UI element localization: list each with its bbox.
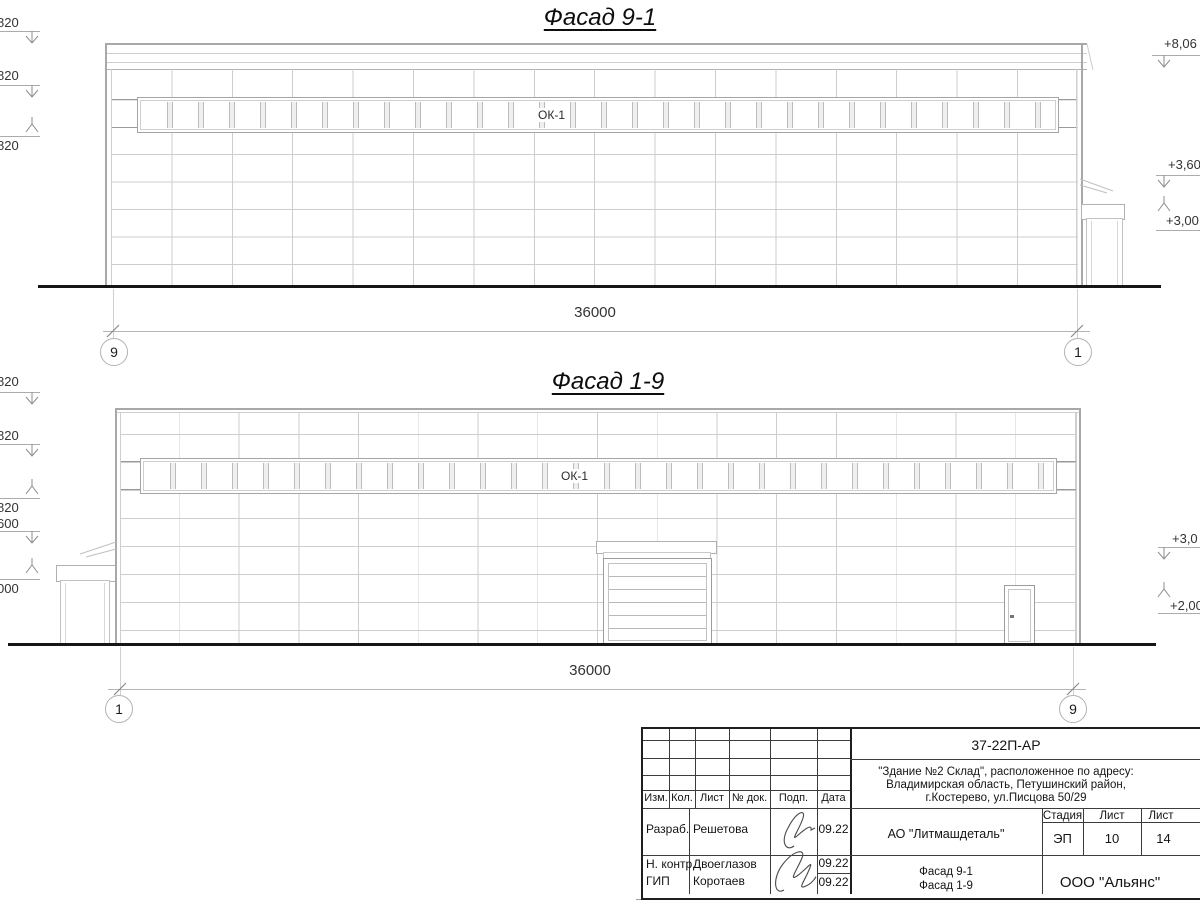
elevation-arrow-down-icon bbox=[26, 444, 38, 456]
porch-inner-lines bbox=[1091, 221, 1118, 287]
canopy-slope-line bbox=[80, 542, 116, 557]
dimension-text: 36000 bbox=[490, 662, 690, 679]
wall-edge-left-inner bbox=[111, 69, 112, 286]
tb-project-line: г.Костерево, ул.Писцова 50/29 bbox=[850, 792, 1162, 805]
dimension-line bbox=[108, 689, 1086, 690]
tb-date: 09.22 bbox=[817, 823, 850, 837]
tb-line bbox=[643, 808, 1200, 809]
wall-edge-left-inner bbox=[120, 412, 121, 644]
window-band-label: ОК-1 bbox=[533, 108, 570, 122]
tb-stage-value: ЭП bbox=[1042, 832, 1083, 847]
door-handle bbox=[1010, 615, 1014, 618]
fascia-line bbox=[105, 43, 1087, 45]
tb-sheets-label: Лист bbox=[1143, 810, 1179, 823]
tb-stage-label: Стадия bbox=[1042, 810, 1083, 823]
tb-line bbox=[643, 790, 850, 791]
tb-name: Решетова bbox=[693, 823, 748, 837]
elevation-label: 600 bbox=[0, 516, 19, 531]
window-band-label: ОК-1 bbox=[556, 469, 593, 483]
elevation-leader bbox=[1158, 613, 1200, 614]
tb-role: ГИП bbox=[646, 875, 670, 889]
title-block: Изм. Кол. Лист № док. Подп. Дата Разраб.… bbox=[641, 727, 1200, 900]
ground-line bbox=[38, 285, 1161, 288]
tb-col-header: Кол. bbox=[669, 792, 695, 805]
elevation-label: 000 bbox=[0, 581, 19, 596]
tb-col-header: Изм. bbox=[643, 792, 669, 805]
elevation-label: +3,00 bbox=[1166, 213, 1199, 228]
band-level-line bbox=[120, 489, 140, 490]
tb-col-header: Лист bbox=[695, 792, 729, 805]
extension-line bbox=[1073, 647, 1074, 695]
elevation-leader bbox=[0, 31, 40, 32]
tb-doc-number: 37-22П-АР bbox=[850, 737, 1162, 753]
tb-sheet-title-line: Фасад 1-9 bbox=[850, 880, 1042, 893]
tb-line bbox=[770, 729, 771, 894]
tb-name: Двоеглазов bbox=[693, 858, 757, 872]
band-level-line bbox=[112, 99, 137, 100]
tb-project-line: Владимирская область, Петушинский район, bbox=[850, 779, 1162, 792]
elevation-label: +3,60 bbox=[1168, 157, 1200, 172]
window-mullions bbox=[145, 463, 1052, 489]
elevation-label: 820 bbox=[0, 68, 19, 83]
ribbon-window-band: ОК-1 bbox=[137, 97, 1059, 133]
tb-sheet-value: 10 bbox=[1083, 832, 1141, 847]
sectional-gate-slats bbox=[608, 563, 707, 641]
elevation-arrow-down-icon bbox=[1158, 547, 1170, 559]
wall-edge-right-inner bbox=[1076, 412, 1077, 644]
elevation-arrow-down-icon bbox=[1158, 175, 1170, 187]
porch-body bbox=[1086, 218, 1123, 288]
extension-line bbox=[120, 647, 121, 695]
facade-bottom-title: Фасад 1-9 bbox=[458, 368, 758, 396]
elevation-arrow-down-icon bbox=[26, 531, 38, 543]
entrance-door bbox=[1004, 585, 1035, 646]
elevation-arrow-down-icon bbox=[26, 392, 38, 404]
elevation-label: 820 bbox=[0, 428, 19, 443]
elevation-arrow-down-icon bbox=[26, 31, 38, 43]
tb-sheets-value: 14 bbox=[1141, 832, 1186, 847]
wall-edge-left bbox=[115, 408, 117, 644]
fascia-line bbox=[105, 53, 1087, 54]
window-mullions bbox=[142, 102, 1054, 128]
wall-edge-right-inner bbox=[1076, 69, 1077, 286]
elevation-leader bbox=[0, 136, 40, 137]
wall-edge-left bbox=[105, 43, 107, 286]
dimension-line bbox=[103, 331, 1090, 332]
wall-edge-right bbox=[1081, 43, 1083, 286]
elevation-leader bbox=[1158, 547, 1200, 548]
band-level-line bbox=[120, 461, 140, 462]
elevation-leader bbox=[0, 531, 40, 532]
tb-name: Коротаев bbox=[693, 875, 745, 889]
ground-line bbox=[8, 643, 1156, 646]
fascia-line bbox=[105, 62, 1087, 63]
roof-edge-slope bbox=[1087, 44, 1093, 70]
canopy-slope-line bbox=[1080, 179, 1113, 193]
elevation-label: 820 bbox=[0, 15, 19, 30]
tb-line bbox=[850, 759, 1200, 760]
band-level-line bbox=[1057, 127, 1077, 128]
tb-date: 09.22 bbox=[817, 876, 850, 890]
elevation-label: 820 bbox=[0, 138, 19, 153]
tb-line bbox=[643, 855, 1200, 856]
drawing-sheet: Фасад 9-1 ОК-1 36000 9 1 820 820 820 +8,… bbox=[0, 0, 1200, 900]
sectional-gate bbox=[603, 558, 712, 646]
band-level-line bbox=[1057, 99, 1077, 100]
tb-line bbox=[643, 740, 850, 741]
tb-line bbox=[643, 775, 850, 776]
band-level-line bbox=[112, 127, 137, 128]
band-level-line bbox=[1056, 489, 1076, 490]
elevation-label: 820 bbox=[0, 500, 19, 515]
tb-line bbox=[643, 758, 850, 759]
tb-sheet-title-line: Фасад 9-1 bbox=[850, 866, 1042, 879]
dimension-text: 36000 bbox=[495, 304, 695, 321]
elevation-arrow-up-icon bbox=[1158, 582, 1170, 597]
elevation-arrow-up-icon bbox=[26, 558, 38, 573]
ribbon-window-band: ОК-1 bbox=[140, 458, 1057, 494]
band-level-line bbox=[1056, 461, 1076, 462]
facade-top-title: Фасад 9-1 bbox=[450, 4, 750, 32]
wall-panel-horizontal-grid bbox=[120, 407, 1076, 637]
wall-edge-right bbox=[1079, 408, 1081, 644]
tb-client: АО "Литмашдеталь" bbox=[850, 827, 1042, 841]
elevation-leader bbox=[0, 444, 40, 445]
tb-line bbox=[689, 808, 690, 894]
elevation-arrow-up-icon bbox=[26, 117, 38, 132]
porch-inner-lines bbox=[65, 583, 105, 644]
elevation-label: +8,06 bbox=[1164, 36, 1197, 51]
elevation-label: 820 bbox=[0, 374, 19, 389]
elevation-leader bbox=[0, 579, 40, 580]
axis-bubble: 1 bbox=[1064, 338, 1092, 366]
elevation-leader bbox=[1156, 175, 1200, 176]
tb-sheet-label: Лист bbox=[1083, 810, 1141, 823]
tb-organization: ООО "Альянс" bbox=[1042, 874, 1178, 891]
axis-bubble: 9 bbox=[100, 338, 128, 366]
axis-bubble: 1 bbox=[105, 695, 133, 723]
elevation-label: +2,00 bbox=[1170, 598, 1200, 613]
elevation-arrow-up-icon bbox=[26, 479, 38, 494]
elevation-arrow-up-icon bbox=[1158, 196, 1170, 211]
tb-col-header: Дата bbox=[817, 792, 850, 805]
elevation-leader bbox=[1152, 55, 1200, 56]
elevation-arrow-down-icon bbox=[1158, 55, 1170, 67]
elevation-leader bbox=[0, 392, 40, 393]
elevation-leader bbox=[0, 498, 40, 499]
tb-col-header: Подп. bbox=[770, 792, 817, 805]
elevation-label: +3,0 bbox=[1172, 531, 1198, 546]
elevation-leader bbox=[0, 85, 40, 86]
tb-role: Разраб. bbox=[646, 823, 689, 837]
axis-bubble: 9 bbox=[1059, 695, 1087, 723]
tb-col-header: № док. bbox=[729, 792, 770, 805]
tb-role: Н. контр. bbox=[646, 858, 696, 872]
tb-project-line: "Здание №2 Склад", расположенное по адре… bbox=[850, 766, 1162, 779]
elevation-arrow-down-icon bbox=[26, 85, 38, 97]
porch-body bbox=[60, 580, 110, 645]
tb-date: 09.22 bbox=[817, 857, 850, 871]
elevation-leader bbox=[1156, 230, 1200, 231]
tb-line bbox=[817, 873, 850, 874]
